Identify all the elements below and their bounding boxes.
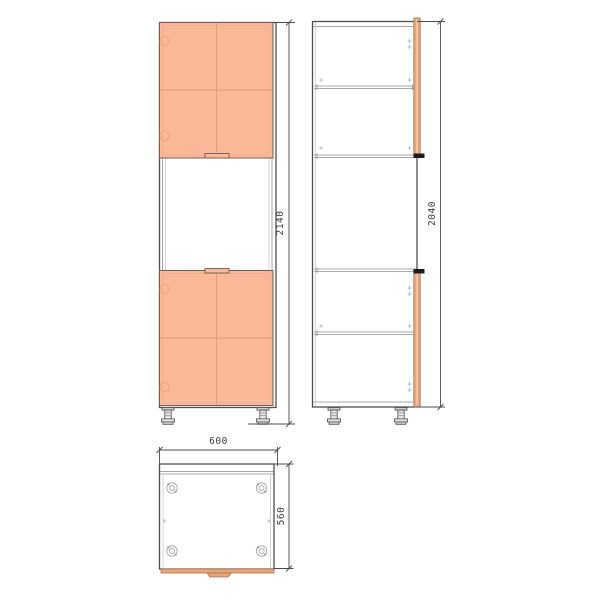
door-handle: [414, 154, 425, 159]
side-height-dimension: 2040: [417, 19, 445, 411]
plan-width-dimension: 600: [157, 436, 281, 466]
plan-width-label: 600: [209, 436, 228, 447]
door-handle: [205, 269, 229, 274]
lower-door: [160, 269, 274, 406]
side-view: 2040: [313, 18, 446, 424]
upper-door: [160, 23, 274, 159]
cabinet-technical-drawing: 2140: [0, 0, 600, 600]
side-height-label: 2040: [427, 201, 438, 226]
plan-depth-dimension: 560: [274, 461, 294, 572]
cabinet-leg: [327, 408, 340, 425]
plan-depth-label: 560: [276, 507, 287, 526]
door-handle: [207, 573, 231, 577]
plan-view: 600 560: [157, 436, 294, 577]
door-front-edge: [161, 569, 274, 573]
door-handle: [205, 154, 229, 159]
cabinet-leg: [394, 408, 407, 425]
front-height-label: 2140: [275, 211, 286, 236]
side-carcass: [313, 22, 418, 408]
cabinet-leg: [256, 408, 269, 425]
cabinet-leg: [161, 408, 174, 425]
front-view: 2140: [160, 20, 296, 428]
door-handle: [414, 269, 425, 274]
